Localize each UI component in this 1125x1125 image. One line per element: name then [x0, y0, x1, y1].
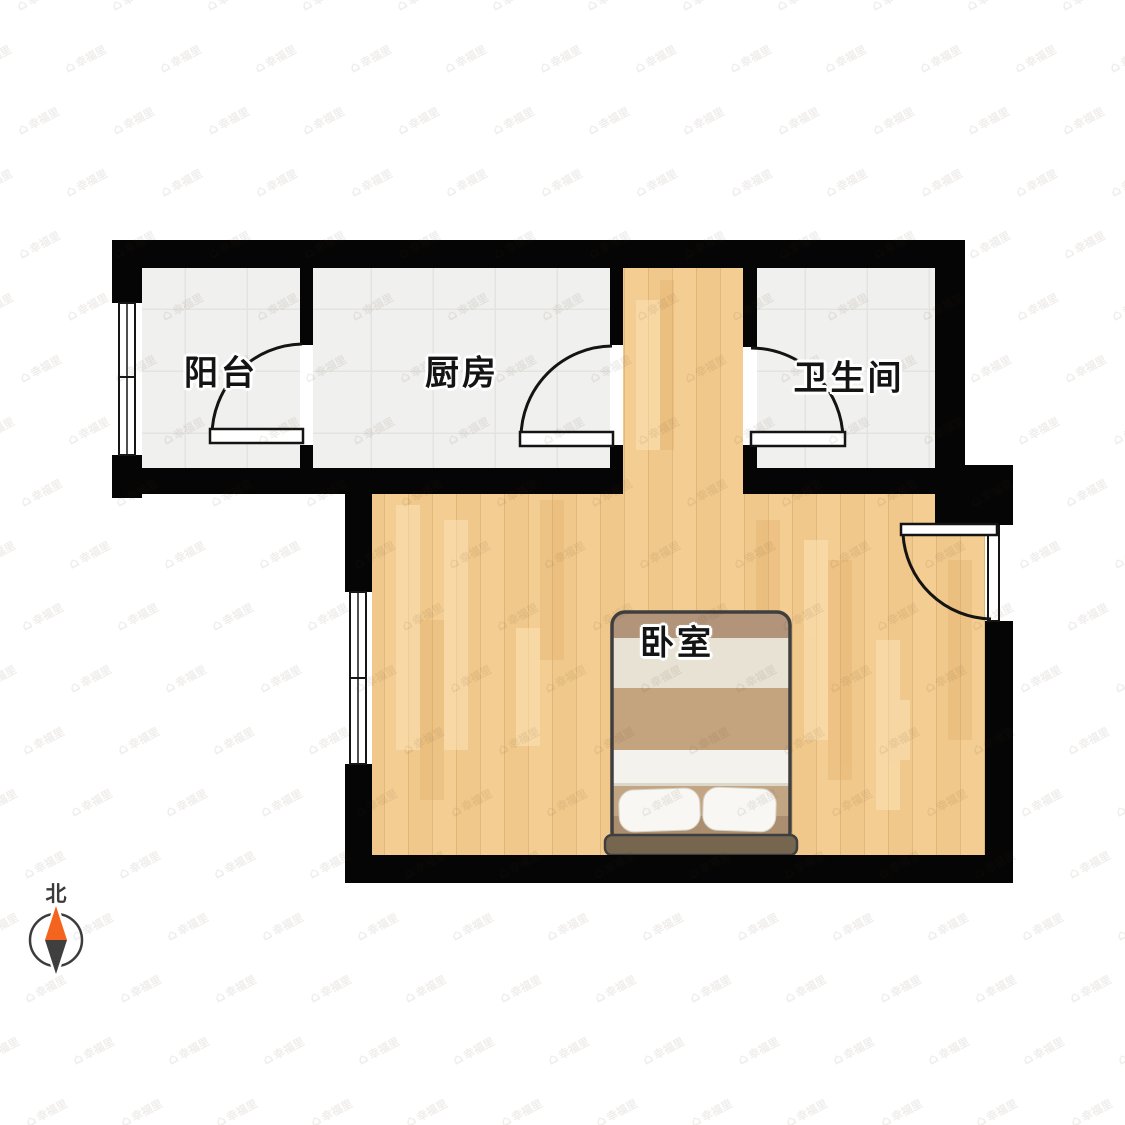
balcony-window: [119, 303, 135, 455]
wall-segment: [743, 468, 965, 494]
wall-segment: [610, 445, 623, 470]
wall-segment: [743, 268, 757, 347]
wall-segment: [300, 268, 313, 345]
balcony-door-leaf: [210, 429, 303, 443]
bathroom-door-leaf: [751, 432, 845, 446]
kitchen-door-leaf: [520, 432, 613, 446]
wall-segment: [935, 240, 965, 465]
wall-segment: [743, 445, 757, 470]
wall-segment: [345, 764, 372, 883]
bed-pillow-right: [702, 787, 776, 833]
wall-segment: [345, 855, 1013, 883]
floor-plan: [0, 0, 1125, 1125]
wall-segment: [300, 445, 313, 470]
wall-segment: [112, 240, 965, 268]
entry-door-threshold: [988, 526, 999, 621]
floor-plan-canvas: ⌂幸福里⌂幸福里⌂幸福里⌂幸福里⌂幸福里⌂幸福里⌂幸福里⌂幸福里⌂幸福里⌂幸福里…: [0, 0, 1125, 1125]
bed-pillow-left: [618, 788, 700, 833]
wall-segment: [112, 240, 142, 303]
wall-segment: [985, 621, 1013, 883]
wall-segment: [345, 494, 372, 592]
room-label-bedroom: 卧室: [640, 616, 714, 665]
wall-segment: [112, 468, 623, 494]
room-label-balcony: 阳台: [184, 346, 258, 395]
room-label-kitchen: 厨房: [425, 346, 499, 395]
entry-door-leaf: [901, 524, 997, 535]
living-room-window: [350, 592, 366, 764]
wall-segment: [610, 268, 623, 345]
compass-icon: [16, 902, 96, 982]
room-label-bathroom: 卫生间: [794, 351, 905, 400]
wall-segment: [935, 465, 1013, 525]
bed-headboard: [605, 835, 797, 855]
